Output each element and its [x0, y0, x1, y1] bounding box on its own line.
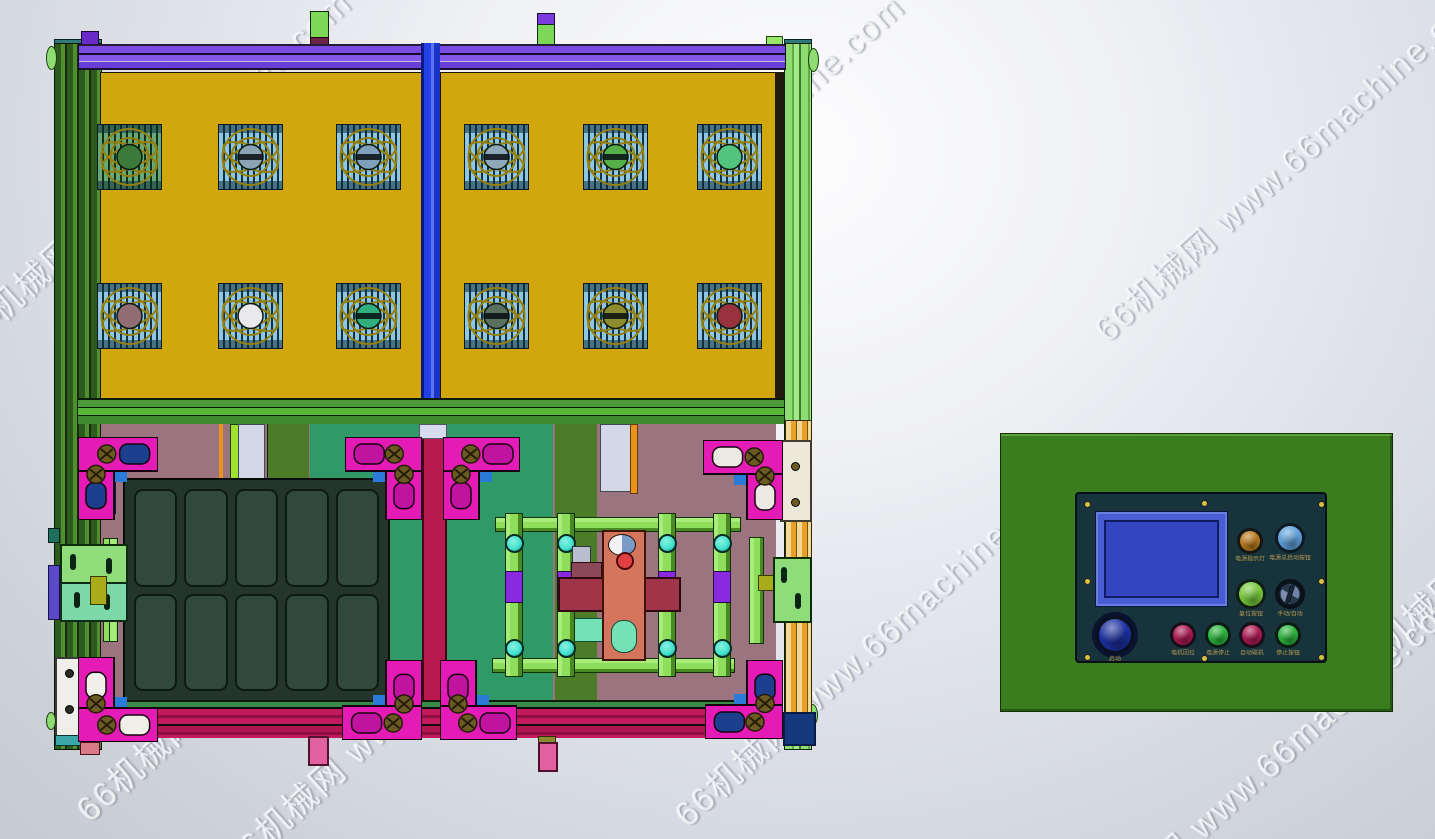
tray-cell — [184, 489, 227, 587]
fan-guard-icon — [337, 284, 400, 348]
left-frame-extrusion — [54, 43, 102, 750]
fan-grille — [218, 124, 283, 190]
machine-foot-1 — [308, 736, 329, 766]
fan-grille — [697, 283, 762, 349]
fan-grille — [97, 283, 162, 349]
button-face — [1239, 582, 1263, 606]
salmon-plate-red-hole — [616, 552, 634, 570]
top-cylinder-1 — [310, 11, 329, 40]
corner-bracket — [342, 660, 422, 740]
fan-guard-icon — [98, 284, 161, 348]
fan-guard-icon — [698, 284, 761, 348]
control-panel-face: 电源指示灯电源总启动按钮复位按钮手动/自动启动电机回位电源停止自动联机停止按钮 — [1075, 492, 1327, 663]
fan-guard-icon — [98, 125, 161, 189]
right-clamp — [773, 557, 812, 623]
fan-guard-icon — [465, 284, 528, 348]
fan-grille — [583, 283, 648, 349]
push-button-start — [1096, 616, 1134, 654]
left-frame-knob-icon — [46, 46, 57, 70]
navy-block-right — [783, 712, 816, 746]
left-bottom-knob-icon — [46, 712, 56, 730]
push-button-auto-link — [1239, 622, 1265, 648]
center-divider-blue — [421, 43, 440, 407]
top-cylinder-2 — [537, 24, 555, 46]
push-button-power-master — [1275, 523, 1305, 553]
left-olive-block — [90, 576, 107, 605]
push-button-power-stop — [1205, 622, 1231, 648]
panel-right-seam — [775, 72, 784, 398]
hmi-screen — [1104, 520, 1219, 598]
heater-panel-left — [100, 72, 423, 400]
corner-bracket — [705, 660, 783, 739]
deck-gray-strip-center — [600, 424, 632, 492]
ladder-slat — [713, 513, 731, 677]
bearing-icon — [658, 639, 677, 658]
panel-screw-icon — [1084, 654, 1091, 661]
clamp-slot — [70, 554, 76, 570]
fan-guard-icon — [584, 125, 647, 189]
fan-grille — [97, 124, 162, 190]
cad-render-viewport: 66机械网 www.66machine.com66机械网 www.66machi… — [0, 0, 1435, 839]
screw-icon — [65, 669, 74, 678]
left-side-indigo-block — [48, 565, 60, 620]
button-label: 电源停止 — [1206, 650, 1230, 657]
button-face — [1173, 625, 1193, 645]
tray-cell — [184, 594, 227, 692]
button-face — [1240, 531, 1260, 551]
push-button-mode-selector — [1275, 579, 1305, 609]
corner-bracket — [703, 440, 783, 520]
right-cream-block — [780, 440, 812, 522]
deck-orange-stripe-center — [630, 424, 638, 494]
fan-grille — [218, 283, 283, 349]
heater-panel-right — [440, 72, 777, 400]
right-olive-block — [758, 575, 774, 591]
mid-rail-green — [78, 398, 784, 424]
button-label: 自动联机 — [1240, 650, 1264, 657]
bearing-icon — [505, 639, 524, 658]
bearing-icon — [557, 639, 576, 658]
watermark-text: 66机械网 www.66machine.com — [1082, 0, 1435, 351]
fan-grille — [464, 124, 529, 190]
machine-foot-2 — [538, 742, 558, 772]
screw-icon — [791, 462, 800, 471]
bearing-icon — [713, 534, 732, 553]
button-label: 启动 — [1109, 656, 1121, 663]
fan-grille — [336, 124, 401, 190]
corner-bracket — [440, 660, 517, 740]
fan-grille — [336, 283, 401, 349]
left-side-teal-tab — [48, 528, 60, 543]
deck-gray-strip-left — [238, 424, 265, 480]
panel-screw-icon — [1084, 501, 1091, 508]
button-face — [1099, 619, 1131, 651]
button-face — [1278, 625, 1298, 645]
push-button-motor-return — [1170, 622, 1196, 648]
button-label: 手动/自动 — [1277, 611, 1302, 618]
slide-block-purple — [505, 571, 523, 603]
fan-guard-icon — [465, 125, 528, 189]
bearing-icon — [505, 534, 524, 553]
panel-screw-icon — [1084, 578, 1091, 585]
corner-bracket — [78, 437, 158, 520]
bearing-icon — [713, 639, 732, 658]
salmon-plate-mint-hole — [611, 620, 637, 653]
button-face — [1278, 526, 1302, 550]
right-frame-knob-icon — [808, 48, 819, 72]
button-face — [1242, 625, 1262, 645]
screw-icon — [791, 498, 800, 507]
clamp-slot — [74, 592, 80, 608]
button-label: 电源指示灯 — [1235, 556, 1265, 563]
selector-switch-icon — [1278, 582, 1302, 606]
fan-grille — [464, 283, 529, 349]
tray-cell — [285, 489, 328, 587]
deck-orange-stripe-left — [219, 424, 223, 478]
bearing-icon — [658, 534, 677, 553]
fan-grille — [583, 124, 648, 190]
panel-screw-icon — [1318, 654, 1325, 661]
panel-screw-icon — [1318, 501, 1325, 508]
fan-guard-icon — [219, 284, 282, 348]
button-label: 电源总启动按钮 — [1269, 555, 1311, 562]
button-label: 电机回位 — [1171, 650, 1195, 657]
fan-guard-icon — [698, 125, 761, 189]
push-button-power-indicator — [1237, 528, 1263, 554]
push-button-stop — [1275, 622, 1301, 648]
fan-grille — [697, 124, 762, 190]
button-face — [1208, 625, 1228, 645]
slide-block-purple — [713, 571, 731, 603]
panel-screw-icon — [1201, 500, 1208, 507]
screw-icon — [65, 705, 74, 714]
fan-guard-icon — [219, 125, 282, 189]
fan-guard-icon — [584, 284, 647, 348]
tray-cell — [235, 489, 278, 587]
clamp-slot — [795, 593, 801, 609]
tray-cell — [285, 594, 328, 692]
clamp-slot — [781, 567, 787, 583]
corner-bracket — [345, 437, 422, 520]
corner-bracket — [78, 657, 158, 742]
fan-guard-icon — [337, 125, 400, 189]
ladder-slat — [505, 513, 523, 677]
tray-cell — [235, 594, 278, 692]
left-foot — [80, 742, 100, 755]
clamp-slot — [106, 558, 112, 574]
button-label: 停止按钮 — [1276, 650, 1300, 657]
panel-screw-icon — [1318, 578, 1325, 585]
button-label: 复位按钮 — [1239, 611, 1263, 618]
hmi-screen-frame — [1095, 511, 1228, 607]
push-button-reset — [1236, 579, 1266, 609]
corner-bracket — [443, 437, 520, 520]
